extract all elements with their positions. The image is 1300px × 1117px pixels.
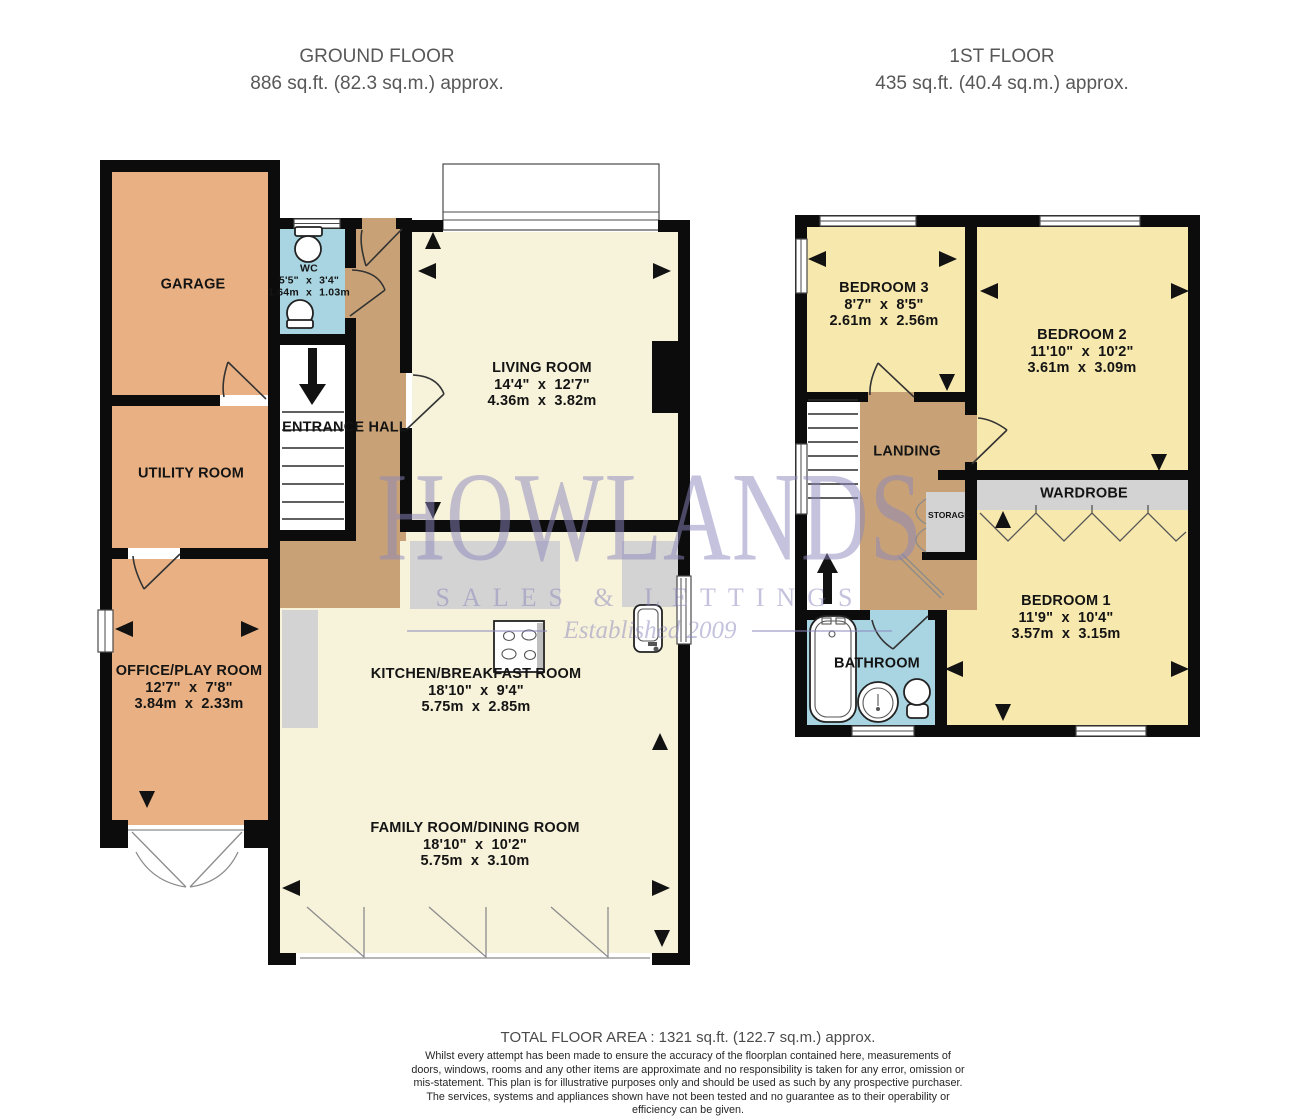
ground-floor-title: GROUND FLOOR 886 sq.ft. (82.3 sq.m.) app… — [250, 44, 503, 97]
kitchen-counter — [410, 541, 560, 609]
room-label-wardrobe: WARDROBE — [1040, 486, 1128, 503]
floor-area-text: 886 sq.ft. (82.3 sq.m.) approx. — [250, 71, 503, 98]
room-label-living: LIVING ROOM 14'4" x 12'7" 4.36m x 3.82m — [488, 360, 597, 410]
room-label-storage: STORAGE — [928, 511, 970, 521]
room-label-bedroom1: BEDROOM 1 11'9" x 10'4" 3.57m x 3.15m — [1012, 593, 1121, 643]
total-floor-area: TOTAL FLOOR AREA : 1321 sq.ft. (122.7 sq… — [348, 1029, 1028, 1046]
wc-sink-icon — [287, 300, 313, 328]
room-label-bedroom3: BEDROOM 3 8'7" x 8'5" 2.61m x 2.56m — [830, 280, 939, 330]
room-label-kitchen: KITCHEN/BREAKFAST ROOM 18'10" x 9'4" 5.7… — [371, 666, 582, 716]
chimney-breast — [652, 341, 690, 413]
room-label-office: OFFICE/PLAY ROOM 12'7" x 7'8" 3.84m x 2.… — [116, 663, 263, 713]
floorplan-graphic — [0, 0, 1300, 1117]
footer: TOTAL FLOOR AREA : 1321 sq.ft. (122.7 sq… — [348, 1029, 1028, 1117]
room-label-landing: LANDING — [873, 444, 940, 461]
wc-toilet-icon — [295, 227, 322, 262]
bathroom-sink-icon — [858, 682, 898, 722]
hob-icon — [494, 621, 544, 672]
disclaimer-text: Whilst every attempt has been made to en… — [411, 1050, 966, 1117]
floor-area-text: 435 sq.ft. (40.4 sq.m.) approx. — [875, 71, 1128, 98]
room-label-family: FAMILY ROOM/DINING ROOM 18'10" x 10'2" 5… — [370, 820, 579, 870]
floorplan-page: HOWLANDS SALES & LETTINGS Established 20… — [0, 0, 1300, 1117]
first-floor-title: 1ST FLOOR 435 sq.ft. (40.4 sq.m.) approx… — [875, 44, 1128, 97]
room-label-entrance-hall: ENTRANCE HALL — [282, 420, 408, 437]
storage-area — [926, 492, 966, 552]
floor-title-text: GROUND FLOOR — [250, 44, 503, 71]
back-door — [677, 576, 691, 644]
room-label-bathroom: BATHROOM — [834, 656, 920, 673]
room-label-garage: GARAGE — [161, 277, 226, 294]
floor-title-text: 1ST FLOOR — [875, 44, 1128, 71]
kitchen-counter — [622, 541, 678, 607]
kitchen-sink-icon — [634, 605, 662, 652]
room-label-bedroom2: BEDROOM 2 11'10" x 10'2" 3.61m x 3.09m — [1028, 327, 1137, 377]
room-label-wc: WC 5'5" x 3'4" 1.64m x 1.03m — [268, 263, 350, 298]
kitchen-counter — [282, 610, 318, 728]
french-doors — [132, 832, 242, 887]
room-label-utility: UTILITY ROOM — [138, 466, 244, 483]
toilet-icon — [904, 679, 930, 718]
